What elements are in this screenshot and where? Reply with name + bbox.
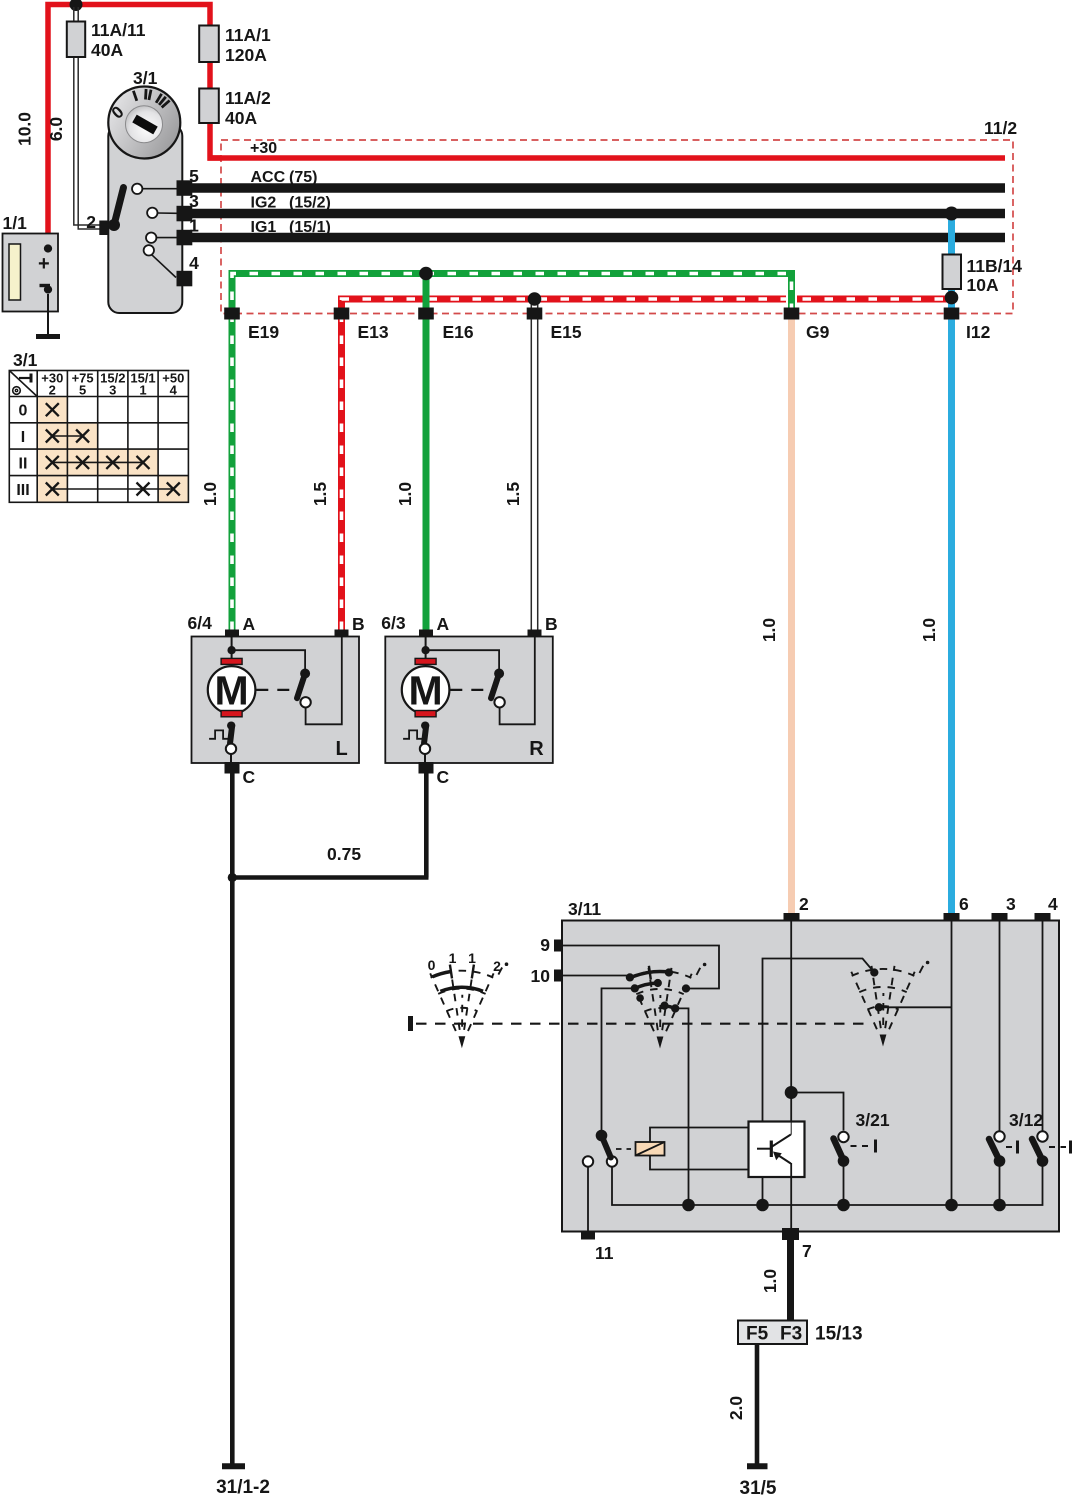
svg-text:6.0: 6.0 [46, 117, 66, 142]
svg-text:11B/14: 11B/14 [967, 256, 1023, 276]
svg-text:2: 2 [799, 894, 809, 914]
svg-text:M: M [215, 668, 249, 714]
svg-text:I: I [21, 429, 25, 446]
svg-text:10A: 10A [967, 275, 999, 295]
svg-text:2.0: 2.0 [726, 1396, 746, 1421]
svg-text:3: 3 [1006, 894, 1016, 914]
svg-text:2: 2 [86, 212, 96, 232]
svg-text:5: 5 [189, 166, 199, 186]
svg-text:E19: E19 [248, 322, 279, 342]
svg-text:1.0: 1.0 [919, 618, 939, 643]
svg-text:40A: 40A [225, 108, 257, 128]
svg-text:31/5: 31/5 [740, 1478, 777, 1499]
svg-text:3/1: 3/1 [133, 68, 158, 88]
svg-text:40A: 40A [91, 40, 123, 60]
svg-text:2: 2 [493, 958, 501, 974]
svg-text:11A/2: 11A/2 [225, 88, 271, 108]
svg-text:1.0: 1.0 [760, 1269, 780, 1294]
svg-text:(75): (75) [289, 169, 317, 186]
svg-text:1.0: 1.0 [395, 482, 415, 507]
svg-text:4: 4 [189, 253, 199, 273]
svg-text:C: C [243, 767, 256, 787]
svg-text:0: 0 [428, 957, 436, 973]
svg-text:1/1: 1/1 [3, 213, 28, 233]
svg-text:B: B [352, 614, 365, 634]
svg-text:0.75: 0.75 [327, 844, 361, 864]
svg-text:120A: 120A [225, 45, 267, 65]
svg-text:I12: I12 [966, 322, 991, 342]
svg-text:L: L [336, 738, 348, 760]
svg-text:3: 3 [189, 191, 199, 211]
svg-text:(15/2): (15/2) [289, 195, 331, 212]
svg-text:0: 0 [19, 403, 28, 420]
svg-text:10: 10 [531, 966, 551, 986]
svg-text:1: 1 [468, 950, 476, 966]
svg-text:1: 1 [449, 950, 457, 966]
svg-text:M: M [409, 668, 443, 714]
svg-text:+30: +30 [250, 140, 277, 157]
svg-text:3/11: 3/11 [568, 899, 601, 919]
svg-text:6/3: 6/3 [381, 613, 406, 633]
svg-text:9: 9 [540, 935, 550, 955]
svg-text:11: 11 [595, 1243, 614, 1263]
svg-text:E15: E15 [551, 322, 582, 342]
svg-text:6: 6 [959, 894, 969, 914]
svg-text:1.0: 1.0 [759, 618, 779, 643]
svg-text:3: 3 [109, 383, 116, 398]
svg-text:(15/1): (15/1) [289, 219, 331, 236]
svg-text:R: R [529, 738, 544, 760]
svg-text:A: A [243, 614, 256, 634]
svg-text:1.5: 1.5 [503, 482, 523, 507]
svg-text:1: 1 [139, 383, 146, 398]
svg-text:10.0: 10.0 [15, 112, 35, 146]
svg-text:4: 4 [1048, 894, 1058, 914]
svg-text:E13: E13 [358, 322, 389, 342]
svg-text:ACC: ACC [251, 169, 286, 186]
svg-text:11A/1: 11A/1 [225, 25, 271, 45]
svg-text:F3: F3 [780, 1324, 802, 1345]
svg-text:G9: G9 [806, 322, 830, 342]
svg-text:E16: E16 [443, 322, 474, 342]
svg-text:+: + [38, 253, 50, 275]
svg-text:4: 4 [170, 383, 178, 398]
svg-text:1.5: 1.5 [310, 482, 330, 507]
svg-text:1.0: 1.0 [200, 482, 220, 507]
svg-text:15/13: 15/13 [815, 1324, 863, 1345]
svg-text:A: A [437, 614, 450, 634]
svg-text:C: C [437, 767, 450, 787]
svg-text:II: II [19, 455, 28, 472]
svg-text:B: B [545, 614, 558, 634]
svg-text:6/4: 6/4 [188, 613, 213, 633]
svg-text:11/2: 11/2 [984, 118, 1017, 138]
svg-text:IG2: IG2 [251, 195, 277, 212]
svg-text:IG1: IG1 [251, 219, 277, 236]
svg-text:3/1: 3/1 [13, 350, 38, 370]
svg-text:III: III [16, 482, 29, 499]
svg-text:2: 2 [49, 383, 56, 398]
svg-text:7: 7 [802, 1241, 812, 1261]
svg-text:11A/11: 11A/11 [91, 20, 146, 40]
svg-text:3/21: 3/21 [856, 1110, 890, 1130]
svg-text:5: 5 [79, 383, 86, 398]
svg-text:F5: F5 [746, 1324, 769, 1345]
svg-text:3/12: 3/12 [1009, 1110, 1043, 1130]
svg-text:31/1-2: 31/1-2 [216, 1477, 270, 1498]
svg-text:1: 1 [189, 216, 199, 236]
